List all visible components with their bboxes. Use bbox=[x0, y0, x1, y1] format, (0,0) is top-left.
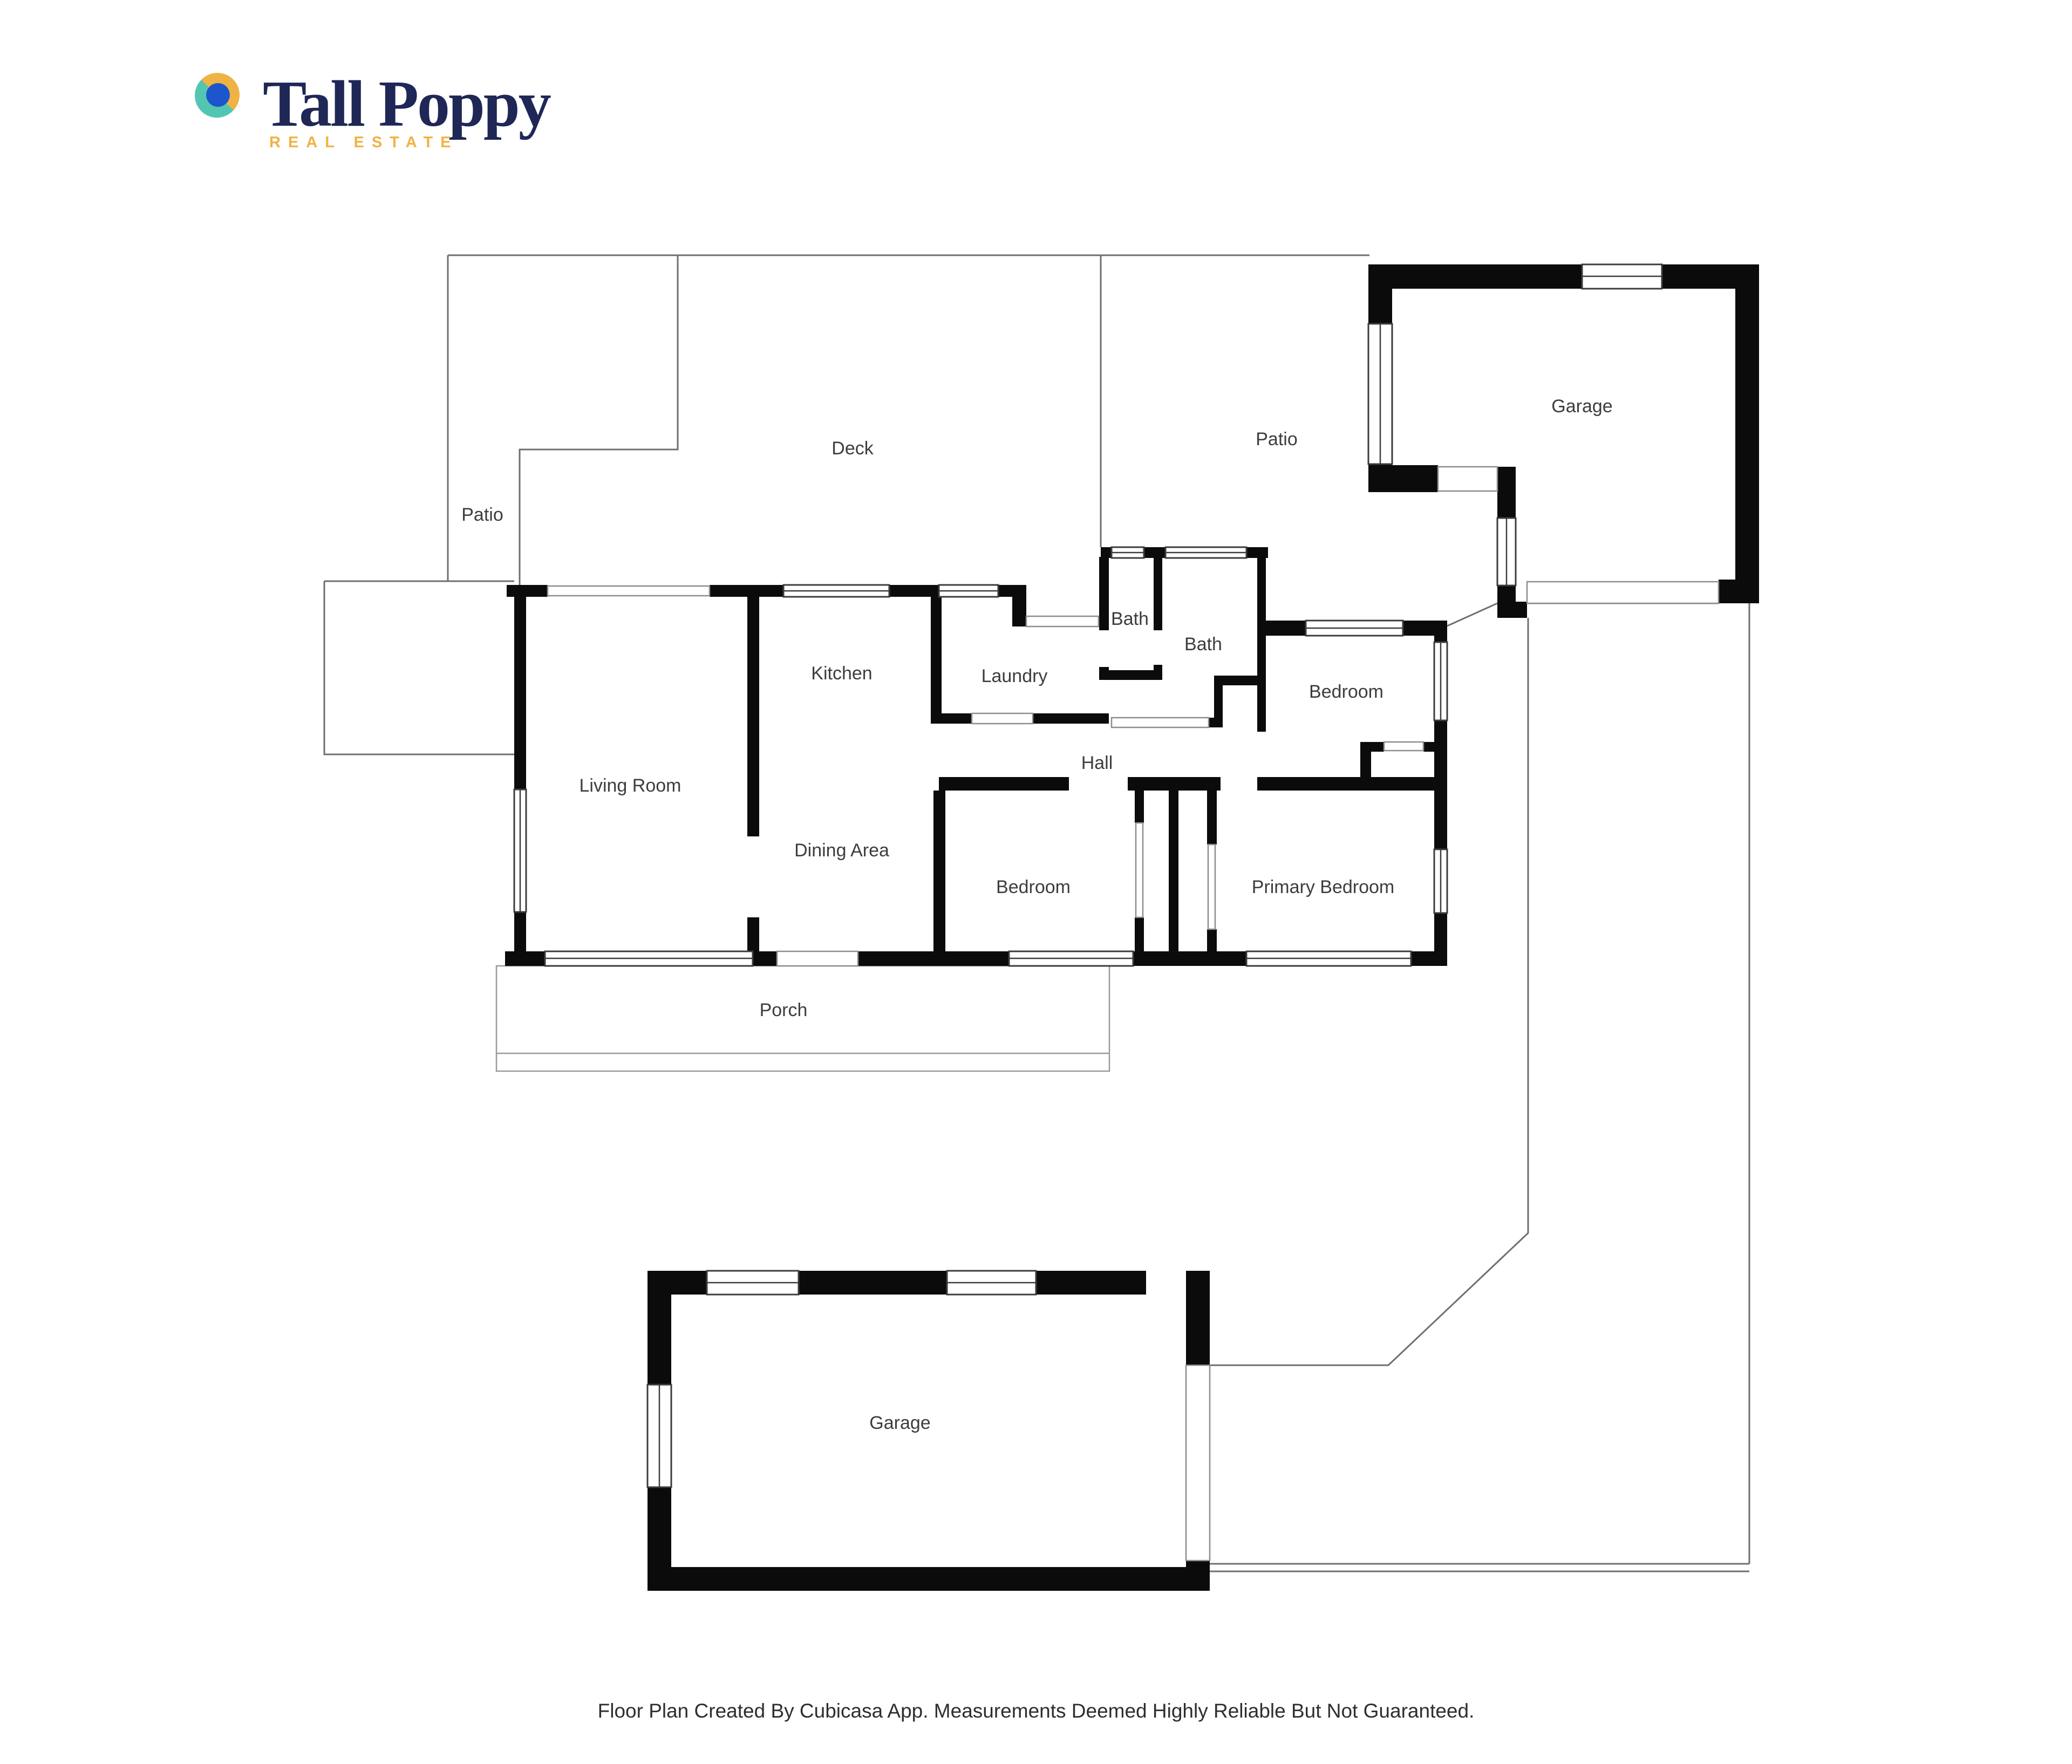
floor-plan-canvas: Tall Poppy REAL ESTATE bbox=[0, 0, 2072, 1764]
window bbox=[939, 585, 998, 597]
room-label-patio-left: Patio bbox=[461, 505, 503, 525]
garage-door-top bbox=[1527, 582, 1719, 603]
brand-title: Tall Poppy bbox=[263, 67, 551, 140]
footer-disclaimer: Floor Plan Created By Cubicasa App. Meas… bbox=[598, 1700, 1475, 1722]
exterior-outlines bbox=[324, 255, 1749, 1571]
window bbox=[514, 789, 526, 912]
window bbox=[1009, 951, 1133, 966]
closet-slider bbox=[1384, 742, 1423, 751]
floor-plan-page: Tall Poppy REAL ESTATE bbox=[0, 0, 2072, 1764]
window bbox=[1497, 518, 1516, 585]
garage-door-bottom bbox=[1186, 1365, 1210, 1561]
room-label-garage-bottom: Garage bbox=[869, 1413, 930, 1433]
room-label-dining-area: Dining Area bbox=[794, 840, 889, 861]
hall-bath-opening bbox=[1112, 718, 1209, 727]
room-label-primary-bedroom: Primary Bedroom bbox=[1252, 877, 1395, 897]
window bbox=[1368, 324, 1392, 464]
window bbox=[545, 951, 753, 966]
door-openings bbox=[548, 467, 1719, 1561]
room-label-bedroom-front: Bedroom bbox=[996, 877, 1071, 897]
room-label-bath-main: Bath bbox=[1184, 634, 1222, 655]
window bbox=[1246, 951, 1411, 966]
room-label-porch: Porch bbox=[760, 1000, 808, 1020]
brand-logo: Tall Poppy REAL ESTATE bbox=[195, 67, 551, 151]
room-label-bedroom-ne: Bedroom bbox=[1309, 682, 1383, 702]
brand-subtitle: REAL ESTATE bbox=[269, 134, 459, 151]
room-label-patio-right: Patio bbox=[1256, 429, 1298, 449]
room-label-deck: Deck bbox=[831, 438, 874, 459]
laundry-deck-opening bbox=[1026, 616, 1099, 626]
room-label-laundry: Laundry bbox=[982, 666, 1048, 686]
room-label-hall: Hall bbox=[1081, 753, 1113, 773]
room-label-bath-small: Bath bbox=[1111, 609, 1149, 629]
window bbox=[647, 1385, 671, 1487]
window bbox=[783, 585, 889, 597]
window bbox=[707, 1271, 799, 1295]
garage-side-door bbox=[1438, 467, 1497, 491]
window bbox=[1165, 547, 1246, 558]
window bbox=[947, 1271, 1036, 1295]
brand-circle-icon bbox=[195, 73, 240, 118]
closet-slider bbox=[1136, 823, 1143, 917]
room-label-kitchen: Kitchen bbox=[811, 663, 872, 684]
window bbox=[1582, 264, 1662, 289]
window bbox=[1112, 547, 1144, 558]
room-label-living-room: Living Room bbox=[580, 775, 681, 796]
living-deck-slider bbox=[548, 586, 710, 596]
room-label-garage-top: Garage bbox=[1551, 396, 1612, 417]
window bbox=[1434, 849, 1447, 913]
hall-laundry-opening bbox=[972, 713, 1033, 724]
garage-top-walls bbox=[1368, 264, 1759, 618]
walls bbox=[505, 547, 1447, 966]
window bbox=[1434, 642, 1447, 720]
window bbox=[1306, 621, 1403, 636]
windows bbox=[514, 264, 1662, 1487]
closet-slider bbox=[1208, 844, 1215, 929]
front-door-opening bbox=[777, 951, 858, 966]
